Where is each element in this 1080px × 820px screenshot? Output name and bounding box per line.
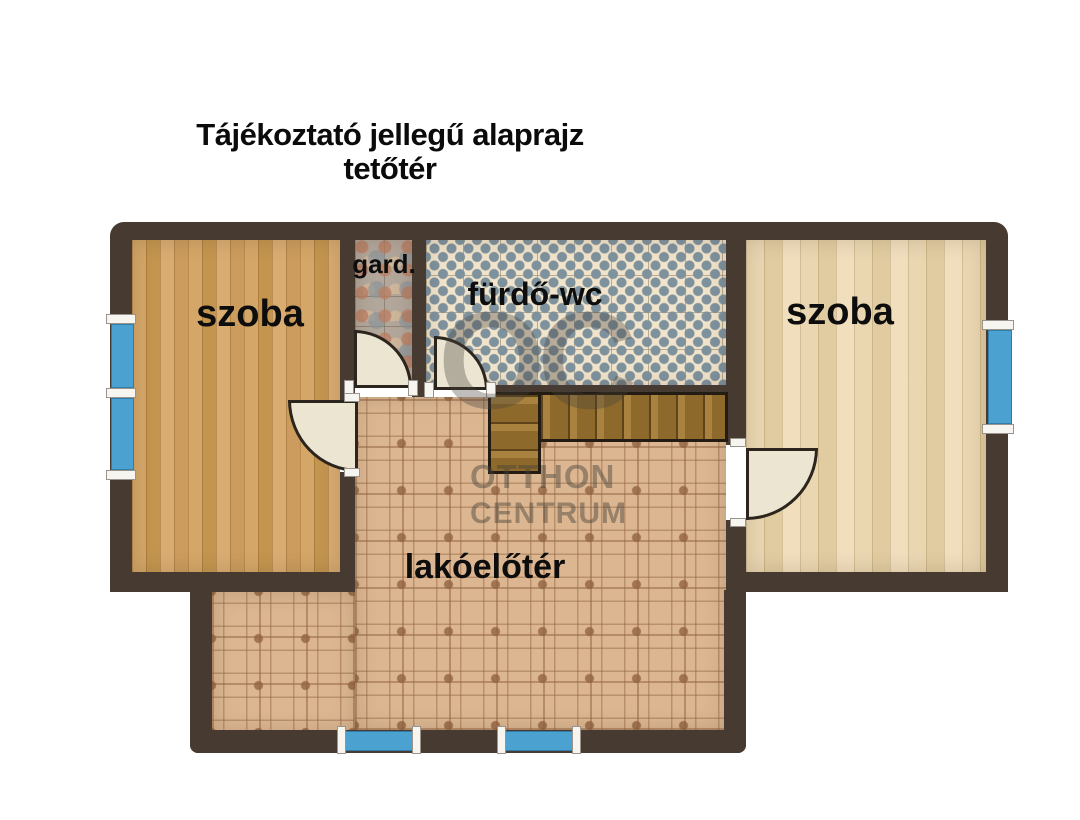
door-jamb [408, 380, 418, 396]
room-lakoeloter-floor-lower [212, 592, 355, 732]
plan-title-line2: tetőtér [120, 152, 660, 186]
room-label-furdo-wc: fürdő-wc [445, 276, 625, 313]
watermark-line2: CENTRUM [470, 499, 627, 529]
window-right [988, 330, 1012, 424]
window-cap [982, 320, 1014, 330]
door-jamb [344, 468, 360, 477]
room-label-lakoeloter: lakóelőtér [390, 548, 580, 587]
wall-outer-bottom-right-wing [726, 572, 1006, 592]
window-cap [982, 424, 1014, 434]
room-label-szoba-right: szoba [750, 291, 930, 334]
window-bottom-2 [505, 731, 573, 751]
wall-szoba-right-partition-upper [726, 240, 746, 445]
plan-title: Tájékoztató jellegű alaprajz tetőtér [120, 118, 660, 186]
window-cap [572, 726, 581, 754]
door-jamb [424, 382, 434, 398]
window-left-upper [111, 324, 134, 388]
watermark-line1: OTTHON [470, 460, 615, 493]
door-jamb [730, 518, 746, 527]
window-left-lower [111, 398, 134, 470]
wall-outer-bottom-left-wing [110, 572, 355, 592]
wall-szoba-left-partition-lower [340, 472, 355, 576]
floor-plan-canvas: Tájékoztató jellegű alaprajz tetőtér [0, 0, 1080, 820]
window-cap [337, 726, 346, 754]
wall-outer-top [110, 222, 1008, 240]
window-cap [106, 470, 136, 480]
wall-hall-right [724, 590, 746, 753]
wall-hall-left [190, 590, 212, 753]
plan-title-line1: Tájékoztató jellegű alaprajz [120, 118, 660, 152]
window-cap [106, 388, 136, 398]
door-jamb [730, 438, 746, 447]
window-cap [106, 314, 136, 324]
door-jamb [344, 393, 360, 402]
wall-hall-bottom [190, 730, 746, 753]
room-szoba-right-floor [746, 240, 986, 572]
window-cap [412, 726, 421, 754]
room-label-gard: gard. [348, 249, 420, 280]
wall-szoba-right-partition-lower [726, 520, 746, 576]
window-bottom-1 [345, 731, 413, 751]
window-cap [497, 726, 506, 754]
room-label-szoba-left: szoba [160, 293, 340, 336]
